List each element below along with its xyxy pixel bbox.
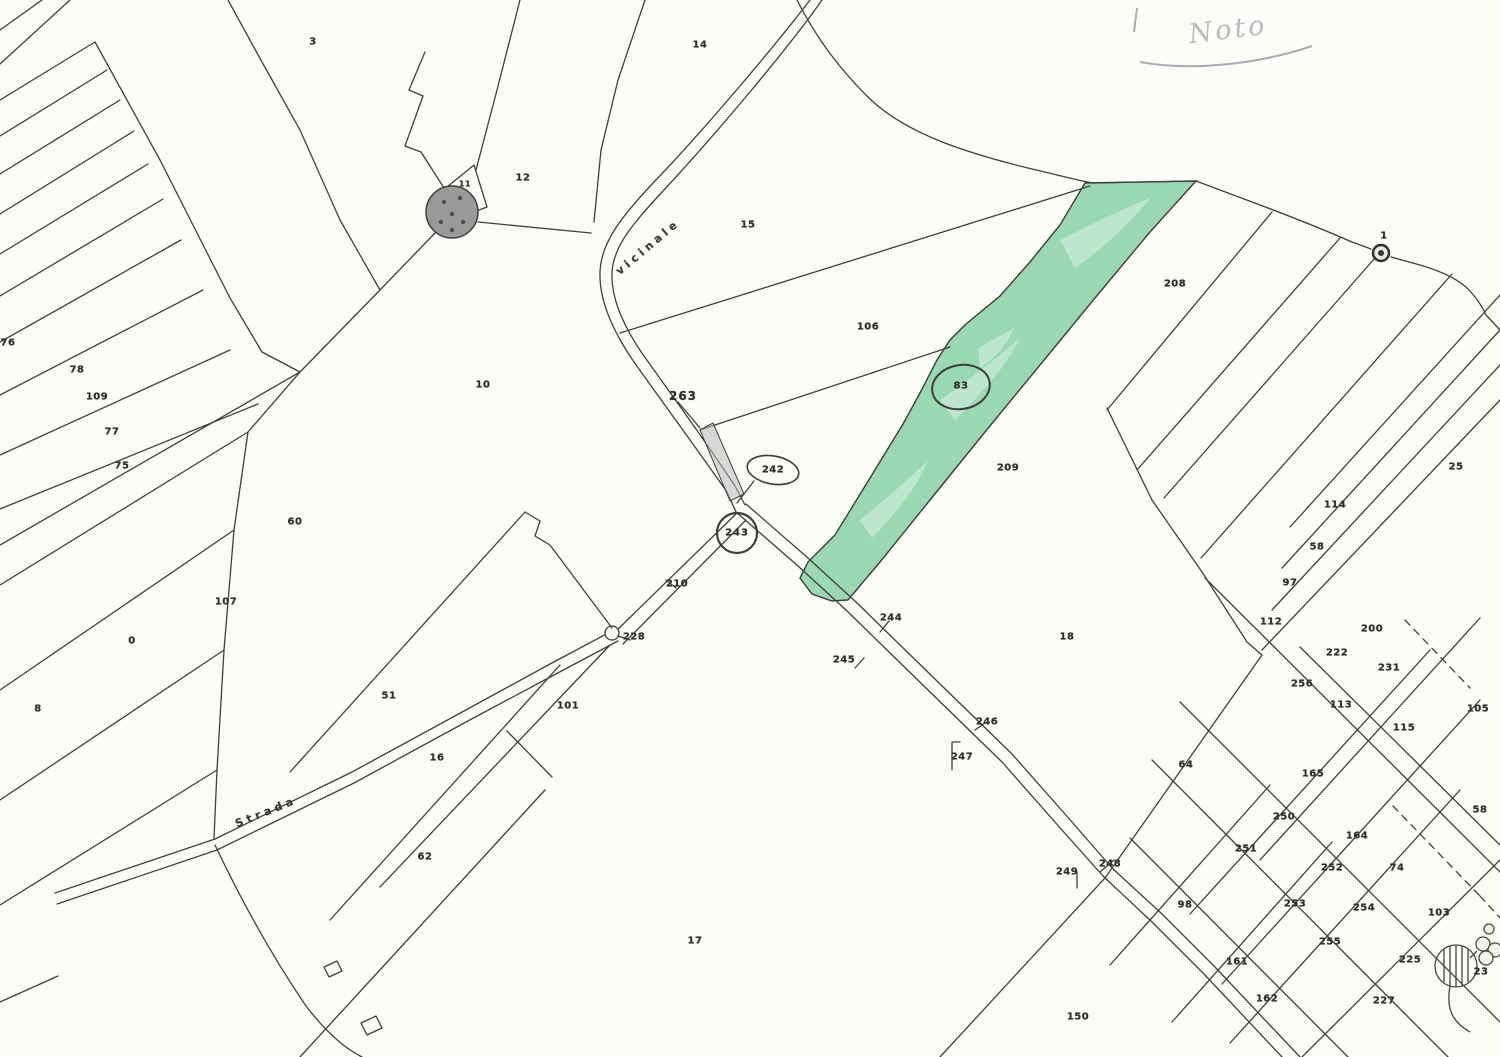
circled-parcel-label-242: 242 bbox=[762, 465, 784, 476]
parcel-label-10: 10 bbox=[476, 380, 491, 391]
parcel-label-103: 103 bbox=[1428, 908, 1450, 919]
parcel-label-106: 106 bbox=[857, 322, 879, 333]
parcel-label-60: 60 bbox=[288, 517, 303, 528]
parcel-label-16: 16 bbox=[430, 753, 445, 764]
parcel-label-17: 17 bbox=[688, 936, 703, 947]
parcel-label-245: 245 bbox=[833, 655, 855, 666]
parcel-label-256: 256 bbox=[1291, 679, 1313, 690]
parcel-label-248: 248 bbox=[1099, 859, 1121, 870]
labels-layer: 3141211151076781097775601070851161016217… bbox=[0, 0, 1500, 1057]
parcel-label-244: 244 bbox=[880, 613, 902, 624]
parcel-label-75: 75 bbox=[115, 461, 130, 472]
parcel-label-12: 12 bbox=[516, 173, 531, 184]
parcel-label-1: 1 bbox=[1380, 231, 1387, 242]
parcel-label-23: 23 bbox=[1474, 967, 1489, 978]
parcel-label-109: 109 bbox=[86, 392, 108, 403]
parcel-label-14: 14 bbox=[693, 40, 708, 51]
parcel-label-62: 62 bbox=[418, 852, 433, 863]
circled-parcel-label-83: 83 bbox=[954, 381, 969, 392]
parcel-label-255: 255 bbox=[1319, 937, 1341, 948]
parcel-label-165: 165 bbox=[1302, 769, 1324, 780]
parcel-label-101: 101 bbox=[557, 701, 579, 712]
parcel-label-11: 11 bbox=[459, 180, 471, 189]
parcel-label-254: 254 bbox=[1353, 903, 1375, 914]
parcel-label-77: 77 bbox=[105, 427, 120, 438]
parcel-label-98: 98 bbox=[1178, 900, 1193, 911]
parcel-label-249: 249 bbox=[1056, 867, 1078, 878]
parcel-label-58: 58 bbox=[1473, 805, 1488, 816]
parcel-label-113: 113 bbox=[1330, 700, 1352, 711]
parcel-label-225: 225 bbox=[1399, 955, 1421, 966]
parcel-label-247: 247 bbox=[951, 752, 973, 763]
parcel-label-3: 3 bbox=[309, 37, 316, 48]
parcel-label-210: 210 bbox=[666, 579, 688, 590]
parcel-label-253: 253 bbox=[1284, 899, 1306, 910]
parcel-label-222: 222 bbox=[1326, 648, 1348, 659]
parcel-label-76: 76 bbox=[1, 338, 16, 349]
parcel-label-164: 164 bbox=[1346, 831, 1368, 842]
parcel-label-252: 252 bbox=[1321, 863, 1343, 874]
parcel-label-161: 161 bbox=[1226, 957, 1248, 968]
parcel-label-115: 115 bbox=[1393, 723, 1415, 734]
parcel-label-114: 114 bbox=[1324, 500, 1346, 511]
parcel-label-112: 112 bbox=[1260, 617, 1282, 628]
parcel-label-208: 208 bbox=[1164, 279, 1186, 290]
parcel-label-246: 246 bbox=[976, 717, 998, 728]
parcel-label-200: 200 bbox=[1361, 624, 1383, 635]
parcel-label-105: 105 bbox=[1467, 704, 1489, 715]
parcel-label-209: 209 bbox=[997, 463, 1019, 474]
parcel-label-227: 227 bbox=[1373, 996, 1395, 1007]
parcel-label-15: 15 bbox=[741, 220, 756, 231]
parcel-label-263: 263 bbox=[669, 389, 697, 403]
parcel-label-97: 97 bbox=[1283, 578, 1298, 589]
circled-parcel-label-243: 243 bbox=[725, 528, 749, 539]
parcel-label-0: 0 bbox=[128, 636, 135, 647]
parcel-label-74: 74 bbox=[1390, 863, 1405, 874]
parcel-label-18: 18 bbox=[1060, 632, 1075, 643]
road-label-vicinale: vicinale bbox=[613, 216, 682, 277]
parcel-label-58: 58 bbox=[1310, 542, 1325, 553]
parcel-label-162: 162 bbox=[1256, 994, 1278, 1005]
parcel-label-228: 228 bbox=[623, 632, 645, 643]
cadastral-map: 3141211151076781097775601070851161016217… bbox=[0, 0, 1500, 1057]
road-label-Strada: Strada bbox=[233, 794, 298, 831]
parcel-label-64: 64 bbox=[1179, 760, 1194, 771]
parcel-label-150: 150 bbox=[1067, 1012, 1089, 1023]
parcel-label-8: 8 bbox=[34, 704, 41, 715]
parcel-label-51: 51 bbox=[382, 691, 397, 702]
parcel-label-250: 250 bbox=[1273, 812, 1295, 823]
parcel-label-231: 231 bbox=[1378, 663, 1400, 674]
parcel-label-78: 78 bbox=[70, 365, 85, 376]
parcel-label-25: 25 bbox=[1449, 462, 1464, 473]
parcel-label-251: 251 bbox=[1235, 844, 1257, 855]
parcel-label-107: 107 bbox=[215, 597, 237, 608]
